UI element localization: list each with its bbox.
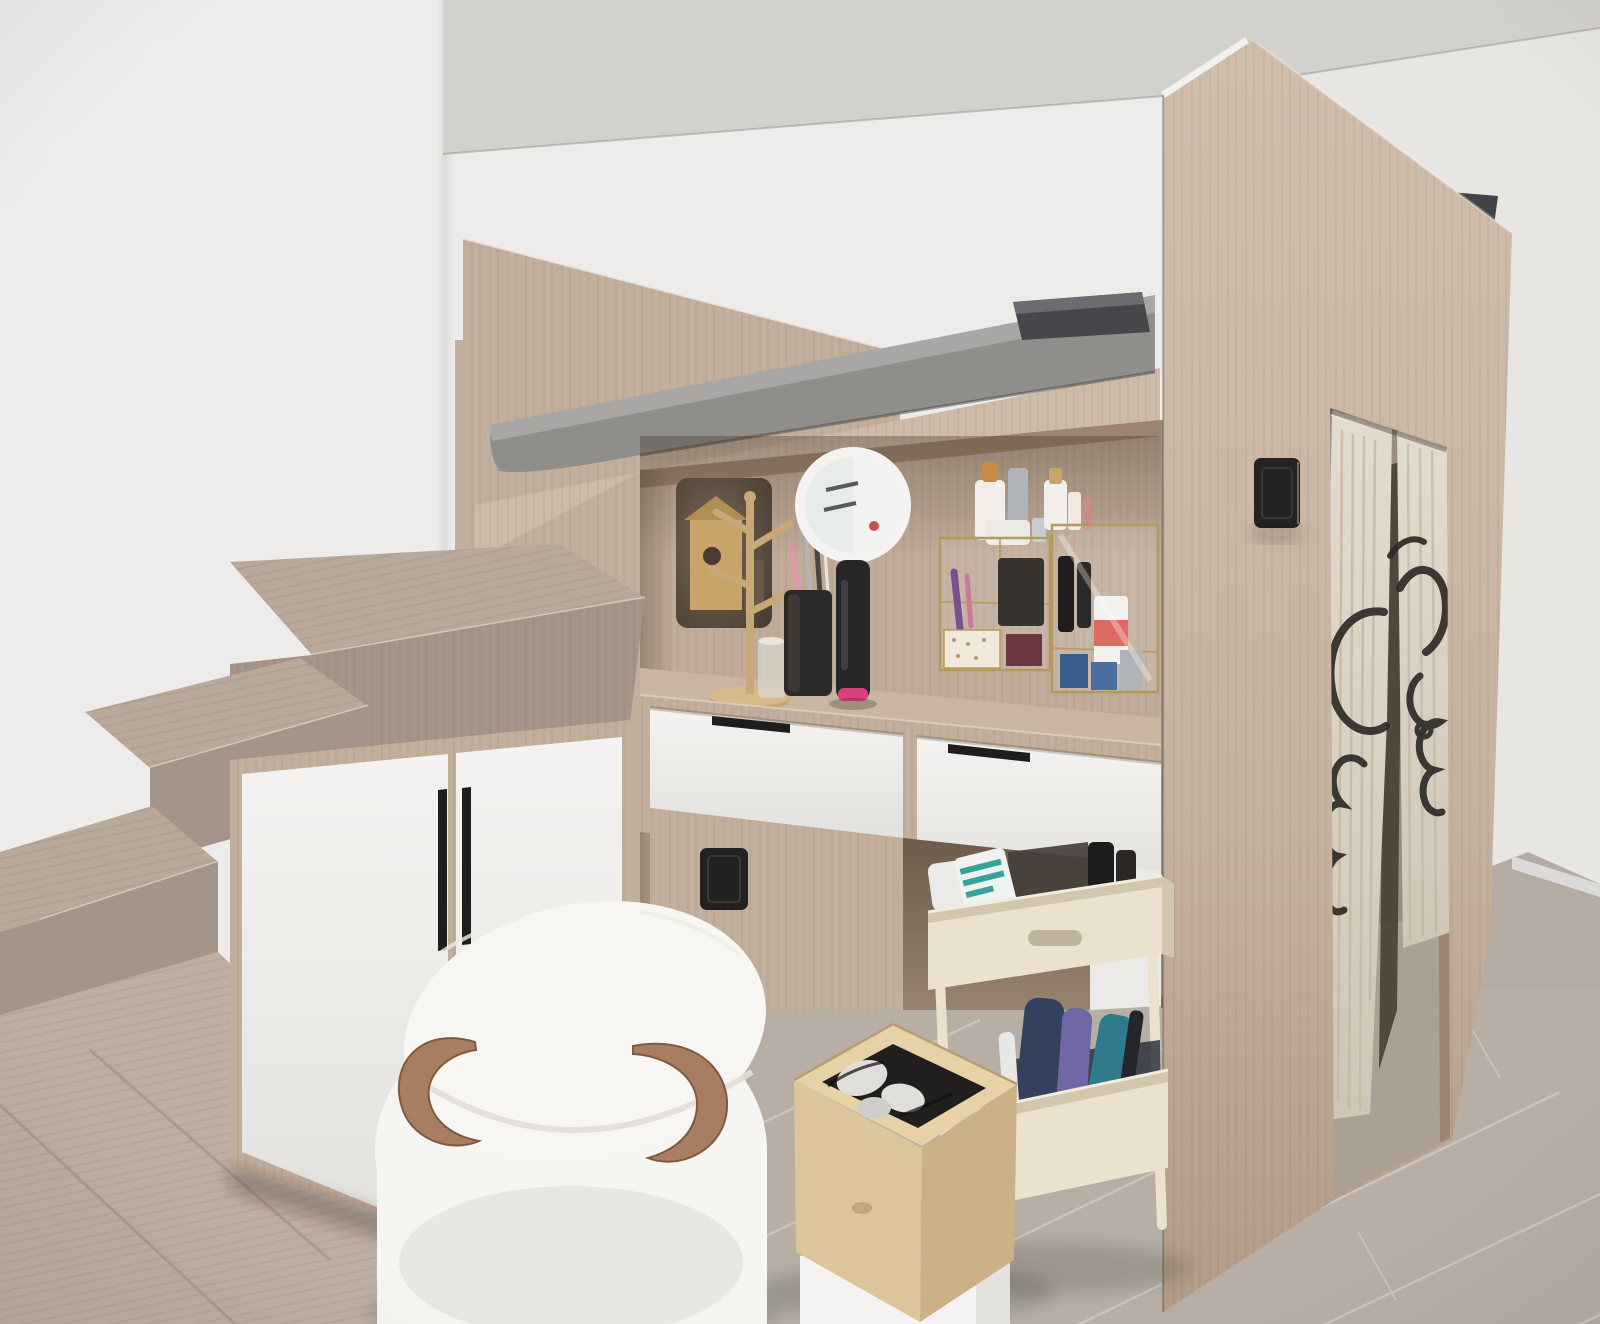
bedroom-photo xyxy=(0,0,1600,1324)
photo-vignette xyxy=(0,0,1600,1324)
